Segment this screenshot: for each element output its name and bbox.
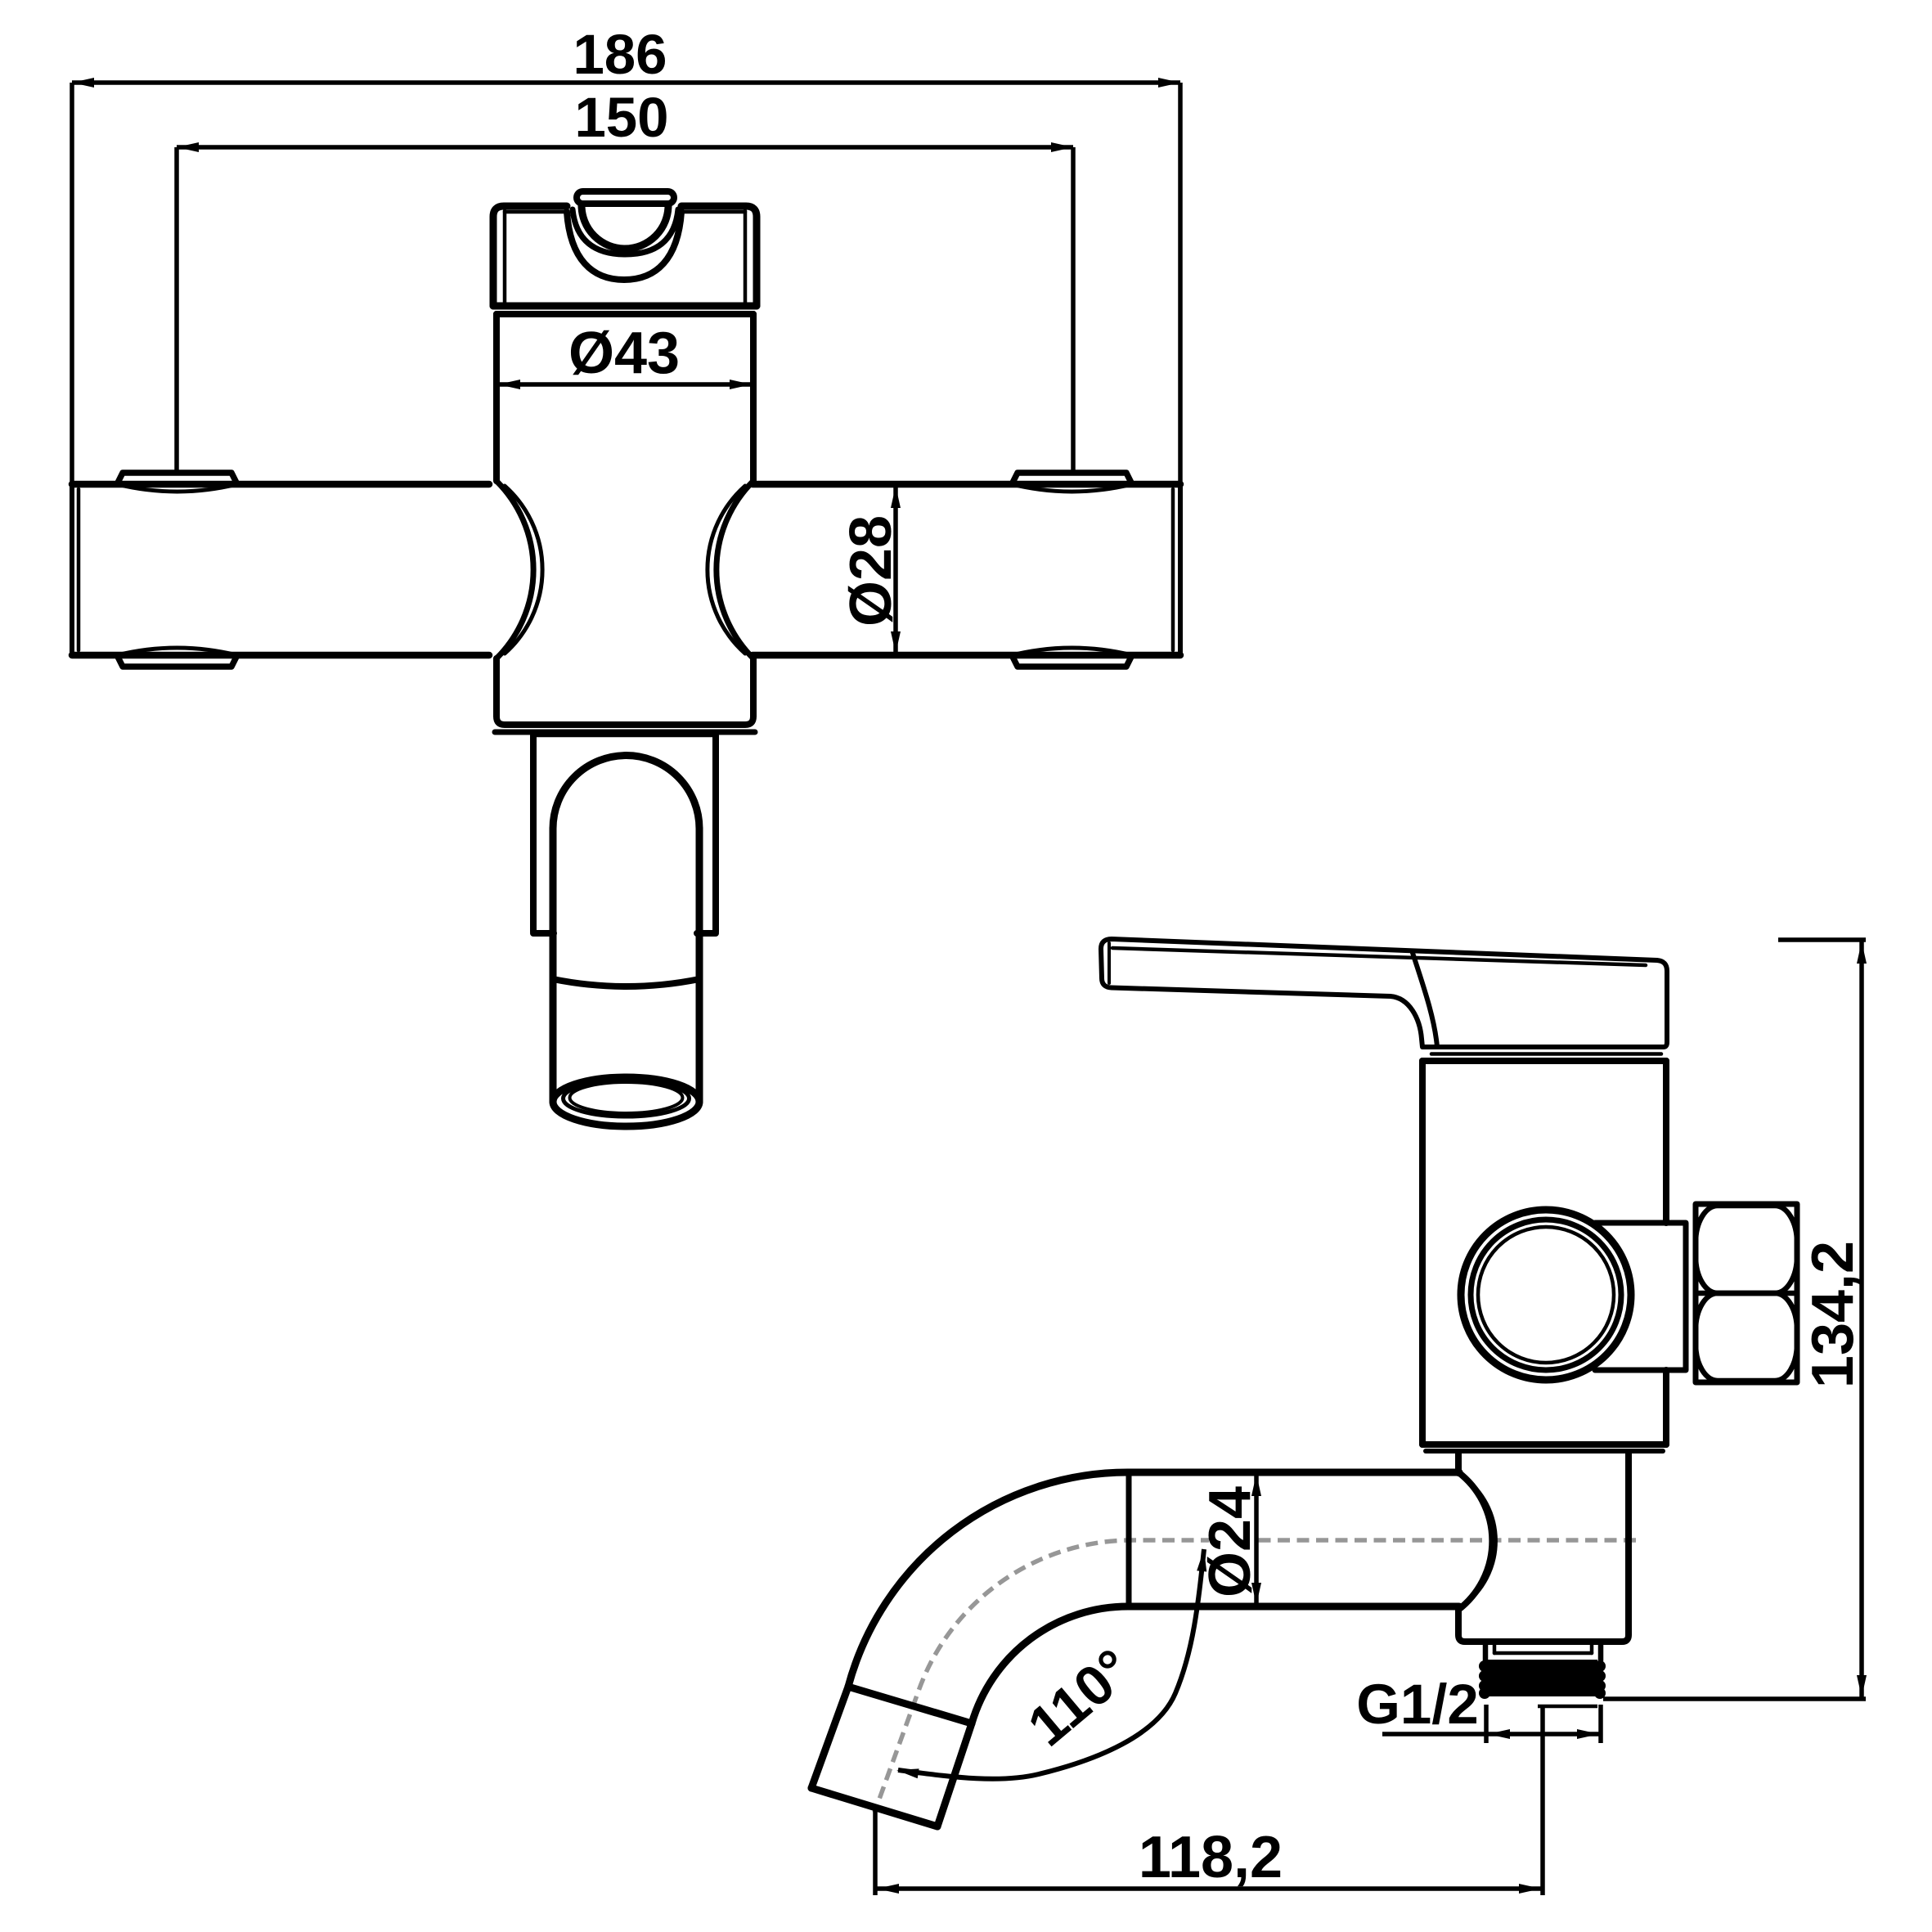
svg-text:Ø24: Ø24 (1197, 1486, 1263, 1597)
svg-text:Ø43: Ø43 (568, 321, 680, 386)
svg-text:G1/2: G1/2 (1356, 1673, 1479, 1736)
svg-text:Ø28: Ø28 (838, 515, 904, 627)
svg-text:134,2: 134,2 (1800, 1241, 1866, 1388)
svg-text:150: 150 (574, 86, 668, 149)
svg-text:186: 186 (573, 23, 667, 86)
svg-text:118,2: 118,2 (1139, 1825, 1283, 1890)
